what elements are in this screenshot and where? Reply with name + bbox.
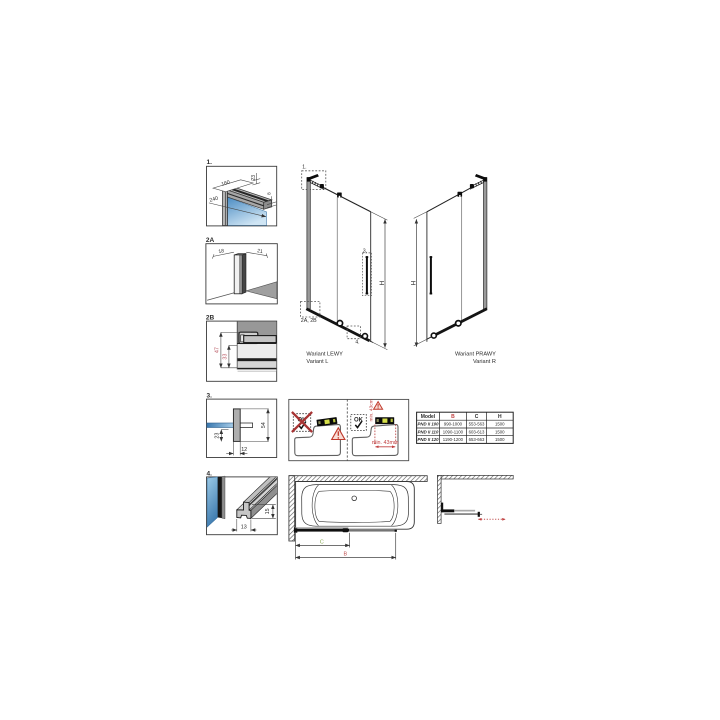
svg-text:2A: 2A [206, 237, 215, 244]
svg-text:B: B [343, 552, 347, 558]
svg-text:3.: 3. [207, 393, 213, 400]
svg-text:PND II 110: PND II 110 [418, 429, 439, 434]
svg-text:2B: 2B [206, 315, 215, 322]
svg-text:1500: 1500 [495, 437, 505, 442]
svg-text:1500: 1500 [495, 429, 505, 434]
svg-text:33: 33 [222, 354, 228, 360]
svg-text:23: 23 [251, 175, 257, 181]
svg-text:PND II 100: PND II 100 [417, 422, 439, 427]
svg-text:1190-1200: 1190-1200 [443, 437, 464, 442]
svg-text:553-563: 553-563 [469, 422, 485, 427]
svg-text:15: 15 [265, 508, 271, 514]
svg-text:23: 23 [215, 433, 221, 439]
svg-text:54: 54 [261, 422, 267, 428]
svg-text:13: 13 [241, 525, 247, 531]
svg-text:1500: 1500 [495, 422, 505, 427]
svg-text:Variant L: Variant L [306, 359, 328, 365]
svg-text:Wariant PRAWY: Wariant PRAWY [455, 352, 496, 358]
svg-text:1.: 1. [302, 165, 306, 171]
svg-text:H: H [498, 414, 502, 420]
svg-text:min. 43cm: min. 43cm [368, 399, 374, 421]
svg-text:Wariant LEWY: Wariant LEWY [306, 352, 343, 358]
svg-text:47: 47 [214, 347, 220, 353]
svg-text:8: 8 [267, 192, 272, 195]
svg-text:OK: OK [354, 417, 364, 423]
svg-text:Model: Model [421, 414, 436, 420]
svg-text:Variant R: Variant R [473, 359, 496, 365]
svg-text:C: C [475, 414, 479, 420]
svg-text:2A, 2B: 2A, 2B [301, 318, 317, 324]
svg-text:C: C [320, 540, 324, 546]
svg-text:4.: 4. [355, 339, 359, 345]
svg-text:12: 12 [241, 447, 247, 453]
svg-text:603-613: 603-613 [469, 429, 485, 434]
svg-text:990-1000: 990-1000 [444, 422, 463, 427]
svg-text:1090-1100: 1090-1100 [443, 429, 464, 434]
svg-text:653-663: 653-663 [469, 437, 485, 442]
svg-text:3.: 3. [363, 248, 367, 254]
svg-text:1.: 1. [207, 159, 213, 166]
svg-text:H: H [379, 280, 386, 285]
svg-text:PND II 120: PND II 120 [417, 437, 439, 442]
svg-text:B: B [451, 414, 455, 420]
svg-text:H: H [411, 280, 418, 285]
svg-text:min. 43mm: min. 43mm [372, 440, 399, 446]
svg-text:4.: 4. [207, 470, 213, 477]
